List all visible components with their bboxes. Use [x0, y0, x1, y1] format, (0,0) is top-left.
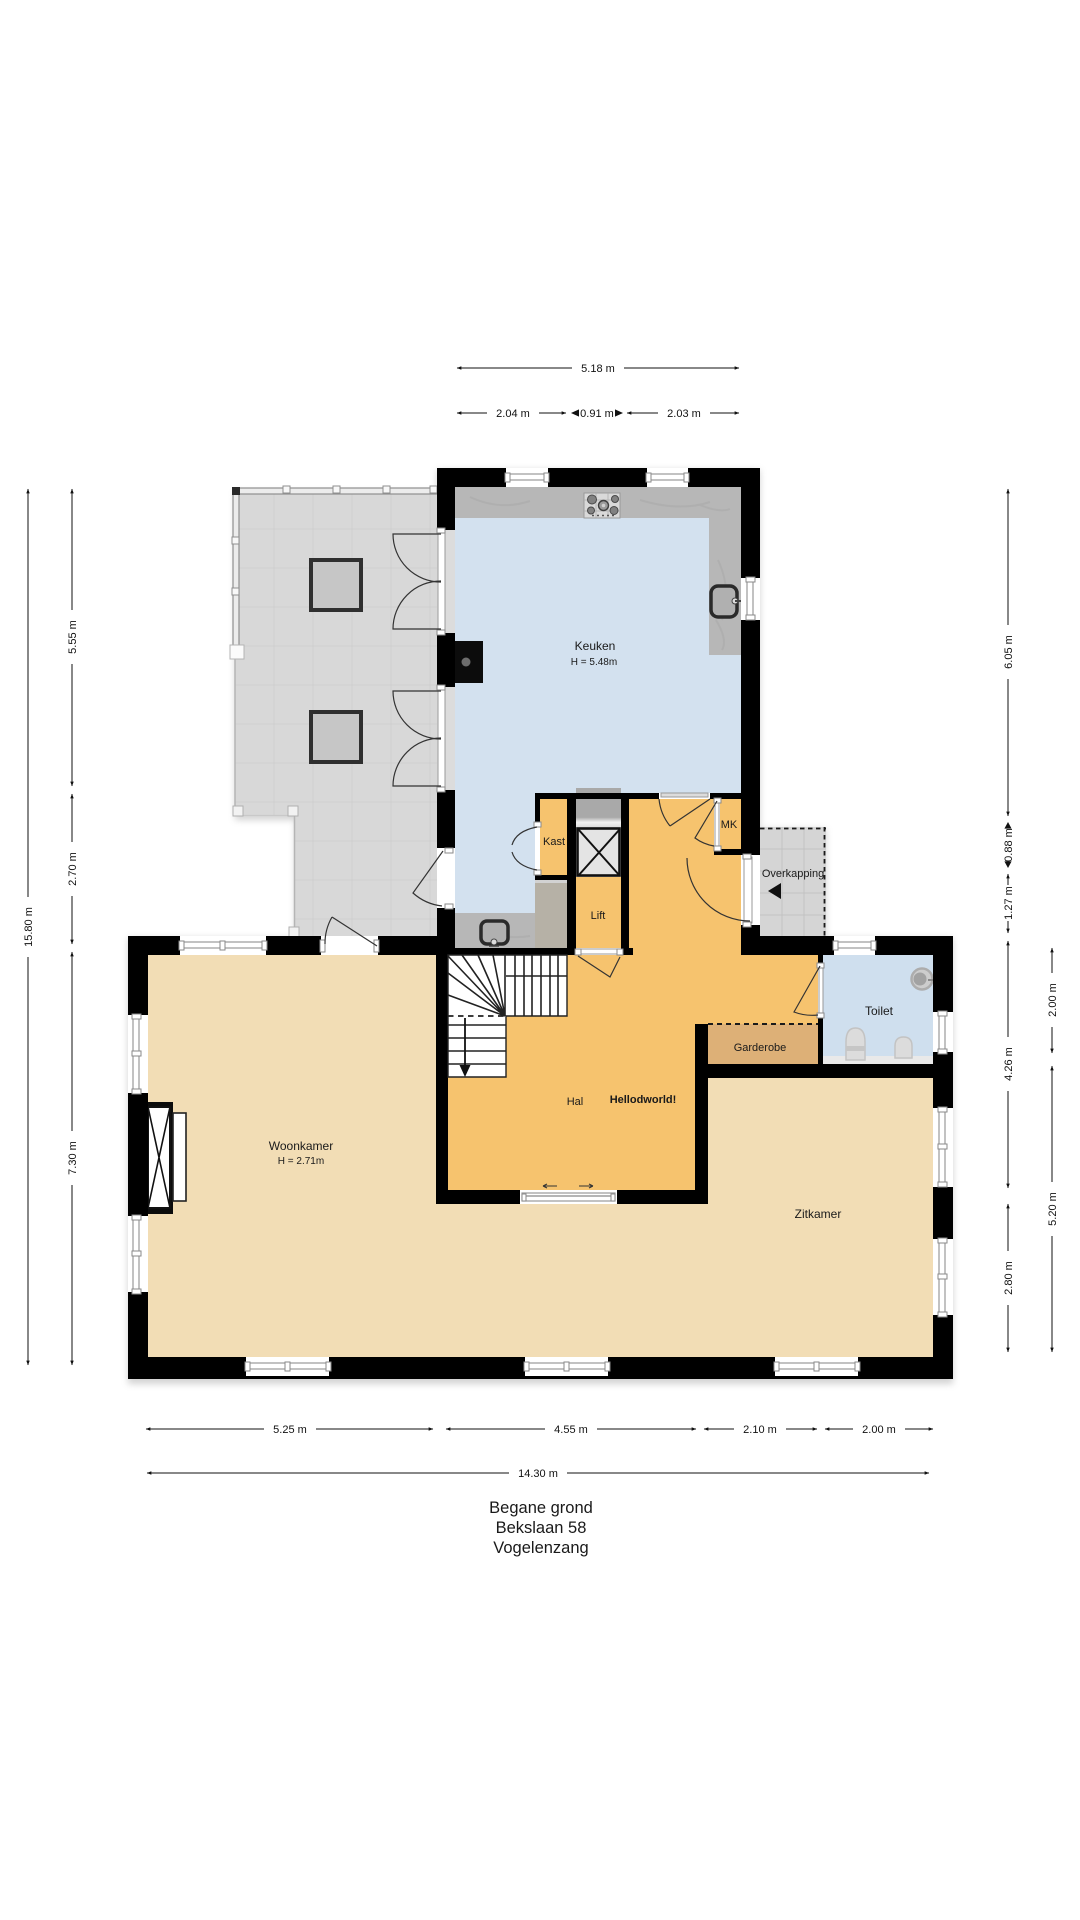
svg-text:Lift: Lift: [591, 910, 606, 922]
svg-text:5.25 m: 5.25 m: [273, 1424, 307, 1436]
svg-text:2.10 m: 2.10 m: [743, 1424, 777, 1436]
svg-text:Hal: Hal: [567, 1096, 584, 1108]
svg-text:15.80 m: 15.80 m: [23, 907, 35, 947]
svg-text:2.04 m: 2.04 m: [496, 408, 530, 420]
svg-text:6.05 m: 6.05 m: [1003, 635, 1015, 669]
svg-text:2.80 m: 2.80 m: [1003, 1261, 1015, 1295]
svg-text:H = 2.71m: H = 2.71m: [278, 1156, 324, 1167]
svg-text:Garderobe: Garderobe: [734, 1042, 787, 1054]
svg-text:2.03 m: 2.03 m: [667, 408, 701, 420]
svg-text:Woonkamer: Woonkamer: [269, 1139, 333, 1153]
svg-text:7.30 m: 7.30 m: [67, 1141, 79, 1175]
svg-text:5.18 m: 5.18 m: [581, 363, 615, 375]
svg-text:H = 5.48m: H = 5.48m: [571, 657, 617, 668]
svg-text:Hellodworld!: Hellodworld!: [610, 1094, 677, 1106]
svg-text:14.30 m: 14.30 m: [518, 1468, 558, 1480]
svg-text:2.70 m: 2.70 m: [67, 852, 79, 886]
svg-text:4.55 m: 4.55 m: [554, 1424, 588, 1436]
svg-text:Keuken: Keuken: [575, 639, 616, 653]
svg-text:0.91 m: 0.91 m: [580, 408, 614, 420]
svg-text:Zitkamer: Zitkamer: [795, 1207, 842, 1221]
svg-text:Begane grond: Begane grond: [489, 1499, 593, 1517]
svg-text:5.55 m: 5.55 m: [67, 620, 79, 654]
svg-text:2.00 m: 2.00 m: [862, 1424, 896, 1436]
svg-text:MK: MK: [721, 819, 738, 831]
svg-text:1.27 m: 1.27 m: [1003, 886, 1015, 920]
svg-text:4.26 m: 4.26 m: [1003, 1047, 1015, 1081]
svg-text:0.88 m: 0.88 m: [1003, 828, 1015, 862]
svg-text:2.00 m: 2.00 m: [1047, 983, 1059, 1017]
svg-text:Vogelenzang: Vogelenzang: [493, 1539, 588, 1557]
svg-text:Kast: Kast: [543, 836, 565, 848]
svg-text:Overkapping: Overkapping: [762, 868, 824, 880]
svg-text:Toilet: Toilet: [865, 1004, 894, 1018]
svg-text:5.20 m: 5.20 m: [1047, 1192, 1059, 1226]
svg-text:Bekslaan 58: Bekslaan 58: [496, 1519, 587, 1537]
